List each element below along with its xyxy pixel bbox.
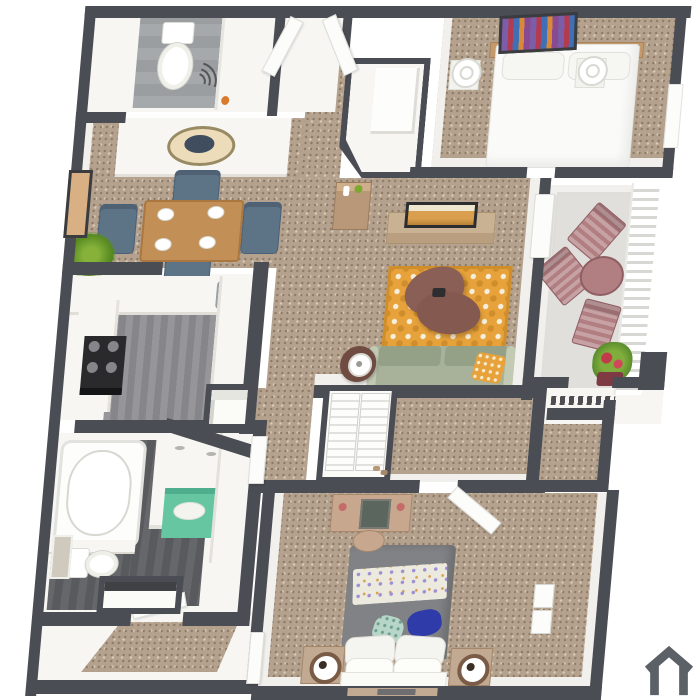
bed-pillow xyxy=(501,52,565,80)
shoes xyxy=(373,466,380,471)
dining-table xyxy=(139,200,244,262)
sofa-back-cushion xyxy=(378,346,442,366)
coat-closet xyxy=(96,576,183,614)
accent-cabinet xyxy=(332,182,372,230)
wall-top xyxy=(84,6,691,18)
wall-bedroom1-south-a xyxy=(409,167,527,178)
closet-shelf xyxy=(533,584,555,608)
toilet-room-mat xyxy=(49,535,73,579)
pantry-shelf xyxy=(209,390,248,424)
cabinet-bottle xyxy=(343,186,350,196)
floor-plan-image xyxy=(0,0,700,700)
wall-bedroom2-top-b xyxy=(457,480,546,493)
wall-entry-bottom xyxy=(28,680,255,694)
stove xyxy=(79,336,126,395)
remote xyxy=(432,288,446,297)
burner xyxy=(107,341,119,352)
bathtub xyxy=(52,440,147,548)
tv xyxy=(404,202,478,228)
dining-chair-right xyxy=(240,202,283,254)
wall-bathroom2-bottom-b xyxy=(182,612,250,626)
wall-bathroom1-south xyxy=(75,112,126,123)
dining-chair-top xyxy=(172,170,221,204)
toilet-tank xyxy=(161,22,195,44)
wall-kitchen-top xyxy=(62,262,163,275)
coat-closet-interior xyxy=(103,582,177,608)
house-logo-icon xyxy=(640,640,698,698)
towel xyxy=(173,502,207,520)
bedroom1-wall-art xyxy=(498,12,578,54)
desk-item xyxy=(396,503,405,511)
wall-bathroom2-right-a xyxy=(253,420,267,436)
burner xyxy=(88,341,100,352)
wall-face xyxy=(550,185,632,192)
teal-cabinet xyxy=(161,488,215,538)
tv-screen xyxy=(407,205,475,225)
desk-item xyxy=(338,503,347,511)
desk-mirror xyxy=(359,499,392,529)
bed2-bench-tray xyxy=(377,689,416,695)
pantry xyxy=(202,384,254,430)
burner xyxy=(86,362,98,373)
foyer-closet-nook xyxy=(370,68,420,134)
shoes xyxy=(380,470,387,475)
burner xyxy=(105,362,117,373)
wall-bathroom2-bottom-a xyxy=(34,612,131,626)
patterned-blanket xyxy=(352,563,447,605)
vanity-desk xyxy=(329,494,412,532)
art-canvas xyxy=(501,15,574,51)
floor-plan xyxy=(0,0,700,700)
bathtub-basin xyxy=(63,450,135,536)
wall-bedroom1-south-b xyxy=(554,167,673,178)
wall-balcony-corner-arm xyxy=(612,377,665,388)
walkin-closet-carpet xyxy=(539,415,603,480)
hall-carpet-right xyxy=(389,388,534,482)
closet-shelf xyxy=(531,610,553,634)
